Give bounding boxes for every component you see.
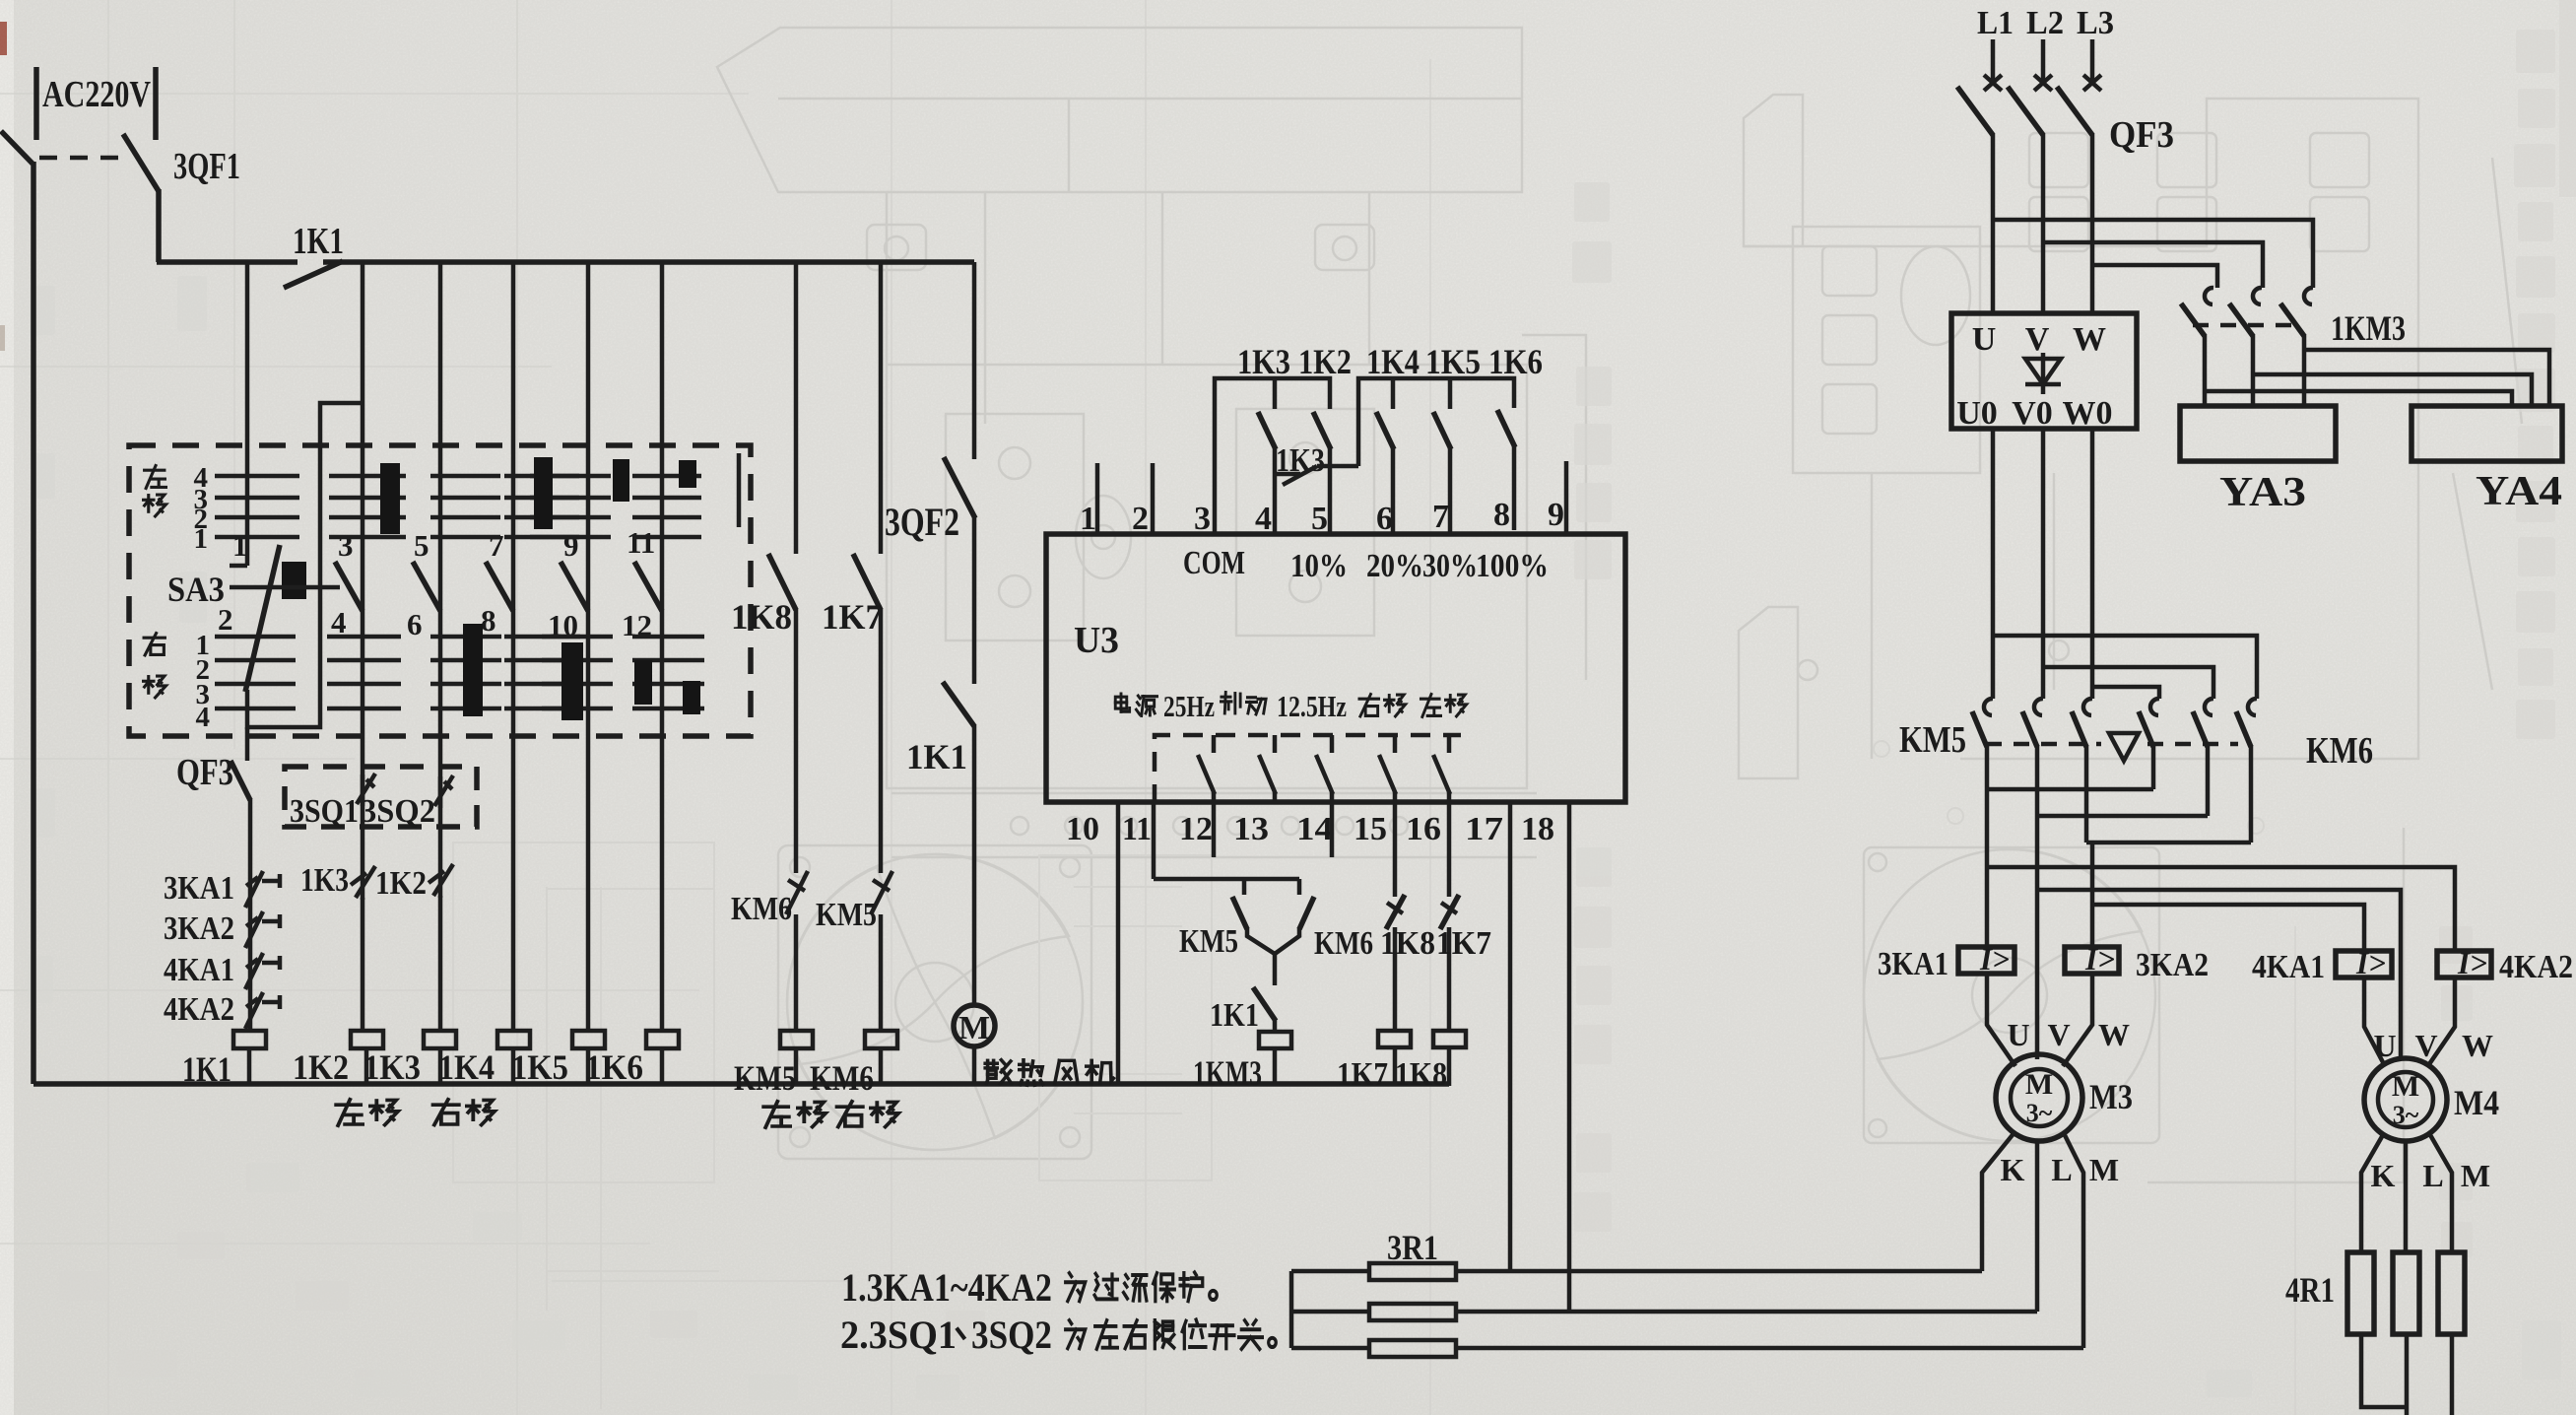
svg-text:4KA2: 4KA2 [164, 991, 234, 1028]
svg-text:KM5: KM5 [734, 1058, 796, 1098]
svg-text:16: 16 [1406, 811, 1441, 847]
svg-text:1K8: 1K8 [731, 597, 792, 637]
svg-text:9: 9 [1548, 497, 1564, 533]
svg-text:U: U [2007, 1017, 2029, 1052]
svg-text:3SQ2: 3SQ2 [971, 1313, 1052, 1357]
svg-text:15: 15 [1354, 811, 1387, 847]
svg-text:12.5Hz: 12.5Hz [1277, 689, 1347, 723]
svg-text:U: U [1972, 321, 1997, 358]
svg-text:U0: U0 [1956, 395, 1998, 432]
svg-text:2: 2 [1132, 501, 1149, 537]
svg-text:KM5: KM5 [816, 897, 877, 933]
svg-text:3KA2: 3KA2 [164, 910, 234, 947]
svg-text:3SQ2: 3SQ2 [361, 793, 435, 830]
svg-text:V: V [2414, 1028, 2437, 1063]
svg-text:W: W [2098, 1017, 2130, 1052]
svg-text:20%: 20% [1366, 548, 1423, 584]
svg-text:6: 6 [407, 607, 423, 641]
svg-text:30%: 30% [1422, 548, 1478, 584]
svg-text:1K4: 1K4 [1366, 342, 1420, 381]
svg-text:7: 7 [489, 528, 504, 563]
svg-text:YA3: YA3 [2219, 470, 2306, 515]
svg-text:1.3KA1~4KA2: 1.3KA1~4KA2 [841, 1265, 1052, 1310]
svg-text:6: 6 [1376, 501, 1393, 537]
svg-text:L: L [2051, 1152, 2072, 1187]
svg-text:9: 9 [563, 528, 579, 563]
svg-text:KM6: KM6 [1314, 925, 1373, 962]
svg-text:KM5: KM5 [1899, 719, 1966, 761]
svg-text:7: 7 [1432, 499, 1449, 535]
svg-text:SA3: SA3 [167, 570, 225, 609]
svg-text:KM6: KM6 [731, 891, 792, 927]
svg-text:18: 18 [1521, 811, 1554, 847]
svg-text:AC220V: AC220V [42, 74, 151, 115]
svg-text:1: 1 [194, 523, 209, 555]
svg-text:W: W [2462, 1028, 2493, 1063]
svg-text:QF3: QF3 [2109, 114, 2174, 156]
svg-text:K: K [2371, 1158, 2396, 1193]
svg-text:1K2: 1K2 [293, 1047, 349, 1087]
svg-text:100%: 100% [1476, 548, 1549, 584]
svg-text:1K5: 1K5 [511, 1047, 568, 1087]
svg-text:1K8: 1K8 [1395, 1056, 1447, 1093]
svg-text:5: 5 [1311, 501, 1328, 537]
svg-text:1K6: 1K6 [585, 1047, 643, 1087]
svg-text:M3: M3 [2089, 1077, 2133, 1116]
svg-text:4KA1: 4KA1 [2252, 949, 2325, 985]
svg-text:L2: L2 [2026, 5, 2064, 41]
svg-text:2.3SQ1: 2.3SQ1 [840, 1313, 957, 1357]
svg-text:11: 11 [627, 525, 655, 560]
svg-text:U3: U3 [1074, 620, 1119, 661]
svg-text:M: M [2392, 1070, 2419, 1103]
svg-text:10%: 10% [1290, 548, 1348, 584]
svg-text:3: 3 [1194, 501, 1211, 537]
svg-text:3QF2: 3QF2 [885, 500, 959, 544]
svg-text:3SQ1: 3SQ1 [290, 793, 359, 830]
svg-text:1K4: 1K4 [438, 1047, 495, 1087]
svg-text:3: 3 [338, 528, 354, 563]
svg-text:K: K [2001, 1152, 2025, 1187]
svg-text:COM: COM [1183, 545, 1245, 581]
svg-text:1K8: 1K8 [1380, 925, 1435, 962]
svg-text:3~: 3~ [2393, 1101, 2419, 1129]
svg-text:KM6: KM6 [2306, 730, 2373, 772]
svg-text:3QF1: 3QF1 [173, 146, 240, 187]
svg-text:5: 5 [414, 528, 429, 563]
svg-text:1KM3: 1KM3 [2331, 308, 2406, 348]
svg-text:U: U [2373, 1028, 2396, 1063]
svg-text:W: W [2073, 321, 2106, 358]
svg-text:3KA1: 3KA1 [1878, 946, 1949, 982]
svg-text:4: 4 [196, 702, 211, 733]
svg-text:M: M [2461, 1158, 2490, 1193]
svg-text:1K6: 1K6 [1488, 342, 1543, 381]
svg-text:10: 10 [1066, 811, 1099, 847]
svg-text:W0: W0 [2063, 395, 2113, 432]
svg-text:14: 14 [1296, 811, 1333, 847]
svg-text:1K7: 1K7 [1337, 1056, 1388, 1093]
svg-text:3KA1: 3KA1 [164, 870, 234, 907]
svg-text:I>: I> [1979, 941, 2010, 977]
svg-text:17: 17 [1465, 811, 1503, 847]
svg-text:1K7: 1K7 [822, 597, 883, 637]
svg-text:L1: L1 [1977, 5, 2014, 41]
svg-text:25Hz: 25Hz [1163, 689, 1215, 723]
svg-text:1: 1 [1080, 501, 1096, 537]
svg-text:1K3: 1K3 [1237, 342, 1290, 381]
svg-text:8: 8 [481, 603, 496, 638]
svg-text:L: L [2422, 1158, 2443, 1193]
svg-text:KM6: KM6 [810, 1058, 874, 1098]
svg-text:M: M [2089, 1152, 2119, 1187]
svg-text:13: 13 [1233, 811, 1269, 847]
svg-text:1K2: 1K2 [1298, 342, 1352, 381]
svg-text:I>: I> [2457, 945, 2487, 980]
svg-text:12: 12 [1179, 811, 1213, 847]
svg-text:4: 4 [1255, 501, 1272, 537]
svg-text:V: V [2025, 321, 2050, 358]
svg-text:M4: M4 [2454, 1083, 2499, 1122]
svg-text:1K1: 1K1 [293, 221, 344, 262]
svg-text:11: 11 [1122, 811, 1152, 847]
svg-text:L3: L3 [2077, 5, 2114, 41]
svg-text:1K1: 1K1 [1210, 997, 1259, 1034]
svg-text:4KA2: 4KA2 [2499, 949, 2573, 985]
svg-text:1K3: 1K3 [300, 862, 349, 899]
svg-text:KM5: KM5 [1179, 923, 1238, 960]
svg-text:QF3: QF3 [176, 752, 233, 793]
svg-text:V0: V0 [2012, 395, 2053, 432]
svg-text:4KA1: 4KA1 [164, 952, 234, 988]
svg-text:M: M [958, 1010, 990, 1046]
svg-text:I>: I> [2355, 945, 2386, 980]
svg-text:4R1: 4R1 [2285, 1270, 2335, 1310]
svg-text:1K3: 1K3 [363, 1047, 421, 1087]
svg-text:3~: 3~ [2026, 1099, 2053, 1127]
svg-text:V: V [2047, 1017, 2070, 1052]
svg-text:I>: I> [2084, 941, 2115, 977]
svg-text:1K1: 1K1 [906, 737, 967, 776]
svg-text:1KM3: 1KM3 [1193, 1053, 1262, 1093]
svg-text:M: M [2025, 1068, 2053, 1101]
svg-text:1K2: 1K2 [375, 865, 427, 902]
svg-text:8: 8 [1493, 497, 1510, 533]
svg-text:1K7: 1K7 [1436, 925, 1491, 962]
svg-text:YA4: YA4 [2476, 469, 2562, 514]
svg-text:3KA2: 3KA2 [2136, 947, 2209, 983]
svg-text:1K5: 1K5 [1425, 342, 1481, 381]
